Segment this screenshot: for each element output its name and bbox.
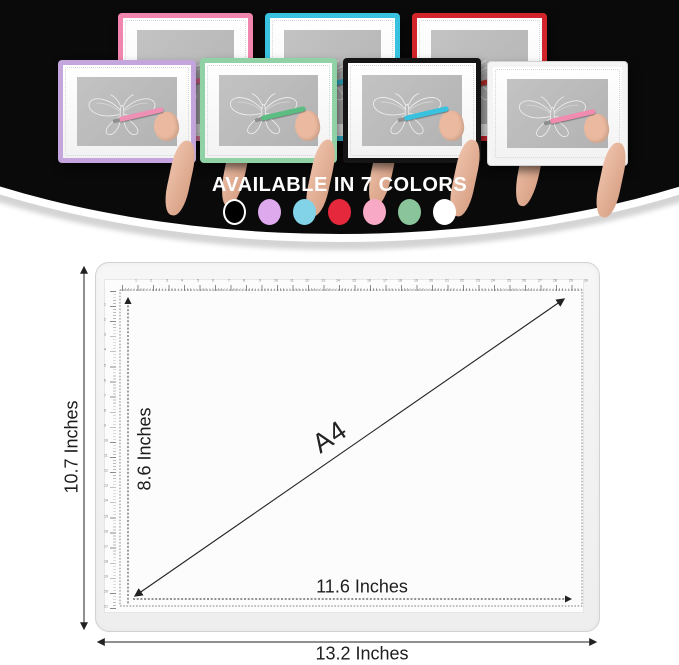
- ruler-number: 23: [476, 279, 480, 283]
- ruler-number: 21: [104, 605, 108, 609]
- ruler-number: 16: [367, 279, 371, 283]
- ruler-number: 9: [104, 424, 106, 428]
- ruler-number: 3: [166, 279, 168, 283]
- butterfly-art: [221, 78, 306, 143]
- color-swatches-row: [0, 199, 679, 225]
- ruler-number: 9: [259, 279, 261, 283]
- color-swatch-black: [223, 199, 246, 225]
- ruler-number: 8: [104, 409, 106, 413]
- ruler-number: 5: [104, 364, 106, 368]
- pad-mat: [63, 65, 191, 158]
- pad-screen: [77, 77, 177, 146]
- ruler-number: 5: [197, 279, 199, 283]
- ruler-number: 1: [104, 303, 106, 307]
- ruler-number: 19: [414, 279, 418, 283]
- color-swatch-pink: [363, 199, 386, 225]
- pad-mat: [493, 67, 622, 160]
- pad-mat: [348, 63, 476, 158]
- pad-screen: [362, 75, 462, 146]
- light-pad-green: [200, 58, 337, 163]
- ruler-number: 29: [569, 279, 573, 283]
- ruler-number: 11: [104, 454, 108, 458]
- ruler-number: 8: [243, 279, 245, 283]
- ruler-number: 11: [290, 279, 294, 283]
- color-swatch-blue: [293, 199, 316, 225]
- ruler-number: 14: [104, 499, 108, 503]
- ruler-number: 15: [352, 279, 356, 283]
- ruler-number: 15: [104, 515, 108, 519]
- pad-screen: [507, 79, 608, 148]
- outer-height-label: 10.7 Inches: [62, 400, 83, 493]
- color-swatch-white: [433, 199, 456, 225]
- ruler-number: 13: [104, 484, 108, 488]
- inner-width-label: 11.6 Inches: [316, 577, 408, 598]
- light-pad-purple: [58, 60, 196, 163]
- light-pad-black: [343, 58, 481, 163]
- butterfly-art: [364, 78, 450, 143]
- ruler-number: 30: [584, 279, 588, 283]
- ruler-number: 24: [491, 279, 495, 283]
- left-ruler: 123456789101112131415161718192021: [104, 291, 116, 609]
- pad-mat: [205, 63, 332, 158]
- ruler-number: 21: [445, 279, 449, 283]
- ruler-number: 6: [212, 279, 214, 283]
- ruler-number: 2: [150, 279, 152, 283]
- color-swatch-red: [328, 199, 351, 225]
- color-swatch-purple: [258, 199, 281, 225]
- inner-height-label: 8.6 Inches: [135, 407, 156, 490]
- ruler-number: 18: [398, 279, 402, 283]
- ruler-number: 2: [104, 318, 106, 322]
- hero-section: AVAILABLE IN 7 COLORS: [0, 0, 679, 260]
- butterfly-art: [79, 80, 165, 143]
- ruler-number: 12: [305, 279, 309, 283]
- ruler-number: 7: [104, 394, 106, 398]
- butterfly-art: [509, 82, 596, 145]
- product-image: AVAILABLE IN 7 COLORS 123456789101112131…: [0, 0, 679, 665]
- color-swatch-green: [398, 199, 421, 225]
- ruler-number: 17: [383, 279, 387, 283]
- ruler-number: 19: [104, 575, 108, 579]
- ruler-number: 10: [104, 439, 108, 443]
- dimension-diagram: 1234567891011121314151617181920212223242…: [0, 240, 679, 665]
- ruler-number: 26: [522, 279, 526, 283]
- ruler-number: 16: [104, 530, 108, 534]
- ruler-number: 3: [104, 333, 106, 337]
- ruler-number: 22: [460, 279, 464, 283]
- ruler-number: 4: [181, 279, 183, 283]
- ruler-number: 1: [135, 279, 137, 283]
- ruler-number: 7: [228, 279, 230, 283]
- ruler-number: 10: [274, 279, 278, 283]
- pad-screen: [219, 75, 318, 146]
- ruler-number: 12: [104, 469, 108, 473]
- ruler-number: 4: [104, 348, 106, 352]
- ruler-number: 13: [321, 279, 325, 283]
- colors-heading: AVAILABLE IN 7 COLORS: [0, 174, 679, 197]
- ruler-number: 14: [336, 279, 340, 283]
- ruler-number: 27: [538, 279, 542, 283]
- ruler-number: 17: [104, 545, 108, 549]
- ruler-number: 6: [104, 379, 106, 383]
- outer-width-label: 13.2 Inches: [315, 644, 408, 665]
- light-pad-white: [487, 61, 628, 166]
- ruler-number: 28: [553, 279, 557, 283]
- ruler-number: 18: [104, 560, 108, 564]
- ruler-number: 20: [104, 590, 108, 594]
- top-ruler: 1234567891011121314151617181920212223242…: [122, 279, 584, 291]
- ruler-number: 25: [507, 279, 511, 283]
- ruler-number: 20: [429, 279, 433, 283]
